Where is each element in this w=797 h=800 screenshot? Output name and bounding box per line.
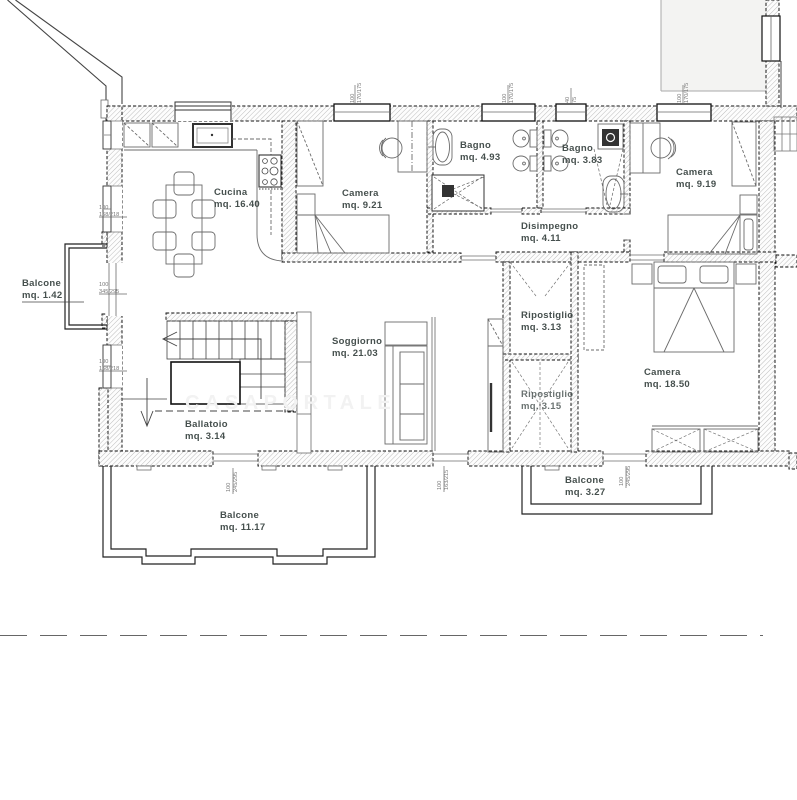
svg-text:100: 100: [226, 483, 232, 492]
svg-text:Bagno: Bagno: [460, 140, 491, 151]
svg-text:Soggiorno: Soggiorno: [332, 336, 382, 347]
svg-text:mq. 3.83: mq. 3.83: [562, 155, 602, 166]
svg-text:mq. 3.27: mq. 3.27: [565, 487, 605, 498]
svg-text:Balcone: Balcone: [565, 475, 604, 486]
svg-text:Ripostiglio: Ripostiglio: [521, 389, 573, 400]
svg-text:mq. 3.13: mq. 3.13: [521, 322, 561, 333]
svg-text:mq. 16.40: mq. 16.40: [214, 199, 260, 210]
svg-text:mq. 1.42: mq. 1.42: [22, 290, 62, 301]
svg-text:Camera: Camera: [644, 367, 681, 378]
svg-text:100: 100: [99, 205, 108, 211]
svg-text:Cucina: Cucina: [214, 187, 248, 198]
svg-text:100: 100: [99, 282, 108, 288]
svg-text:100: 100: [437, 481, 443, 490]
svg-text:100: 100: [619, 477, 625, 486]
svg-text:mq. 11.17: mq. 11.17: [220, 522, 265, 533]
svg-text:mq. 3.14: mq. 3.14: [185, 431, 226, 442]
svg-text:100: 100: [502, 94, 508, 103]
svg-text:Bagno: Bagno: [562, 143, 593, 154]
svg-text:75: 75: [572, 97, 578, 103]
svg-text:mq. 21.03: mq. 21.03: [332, 348, 378, 359]
svg-text:mq. 4.93: mq. 4.93: [460, 152, 500, 163]
svg-text:170/175: 170/175: [684, 83, 690, 103]
svg-text:100: 100: [99, 359, 108, 365]
svg-text:170/175: 170/175: [509, 83, 515, 103]
svg-text:Balcone: Balcone: [220, 510, 259, 521]
svg-text:Disimpegno: Disimpegno: [521, 221, 578, 232]
svg-text:Balcone: Balcone: [22, 278, 61, 289]
svg-text:mq. 9.19: mq. 9.19: [676, 179, 716, 190]
svg-text:mq. 4.11: mq. 4.11: [521, 233, 561, 244]
svg-text:100: 100: [677, 94, 683, 103]
svg-text:mq. 9.21: mq. 9.21: [342, 200, 383, 211]
svg-text:245/295: 245/295: [233, 472, 239, 492]
svg-text:Ballatoio: Ballatoio: [185, 419, 228, 430]
svg-text:163/215: 163/215: [444, 470, 450, 490]
svg-text:40: 40: [565, 97, 571, 103]
svg-text:CASAPORTALE: CASAPORTALE: [185, 392, 396, 414]
svg-text:170/175: 170/175: [357, 83, 363, 103]
svg-text:Camera: Camera: [342, 188, 379, 199]
svg-text:mq. 3.15: mq. 3.15: [521, 401, 562, 412]
svg-text:245/295: 245/295: [626, 466, 632, 486]
svg-text:Ripostiglio: Ripostiglio: [521, 310, 573, 321]
svg-text:Camera: Camera: [676, 167, 713, 178]
svg-text:mq. 18.50: mq. 18.50: [644, 379, 690, 390]
